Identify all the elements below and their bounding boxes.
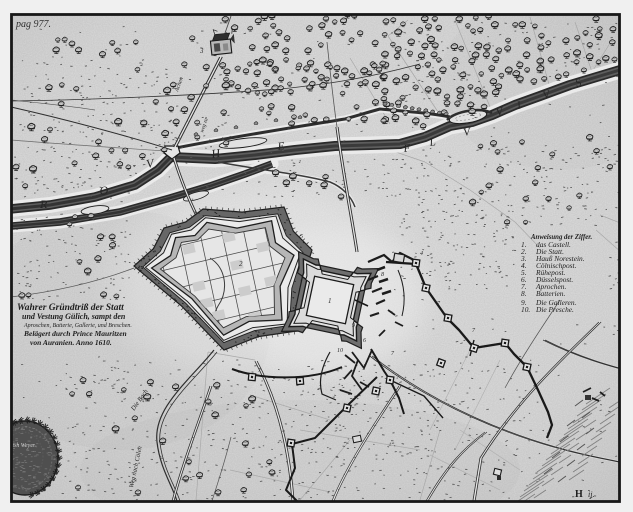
svg-text:3: 3 [199,47,204,55]
svg-text:6: 6 [363,338,366,344]
svg-text:ij.: ij. [588,490,594,499]
svg-text:E: E [276,140,285,153]
svg-text:10: 10 [337,348,343,354]
svg-text:Belägert durch Prince Mauritze: Belägert durch Prince Mauritzen [23,329,127,338]
svg-text:R: R [39,197,48,211]
svg-text:Die Presche.: Die Presche. [535,305,574,314]
svg-text:von Auranien. Anno 1610.: von Auranien. Anno 1610. [30,338,112,347]
svg-text:und Vestung Gülich, sampt den: und Vestung Gülich, sampt den [22,312,126,321]
svg-text:8: 8 [381,272,384,278]
svg-text:10.: 10. [521,305,530,314]
svg-text:9: 9 [352,323,355,329]
svg-text:1: 1 [328,297,332,305]
svg-text:8.: 8. [521,289,527,298]
svg-text:pag 977.: pag 977. [15,19,51,30]
svg-text:O: O [99,183,109,198]
svg-text:4: 4 [420,250,423,257]
svg-text:2: 2 [239,260,243,268]
svg-text:5: 5 [300,234,303,240]
svg-text:Batterien.: Batterien. [536,289,566,298]
svg-text:H: H [575,489,583,500]
